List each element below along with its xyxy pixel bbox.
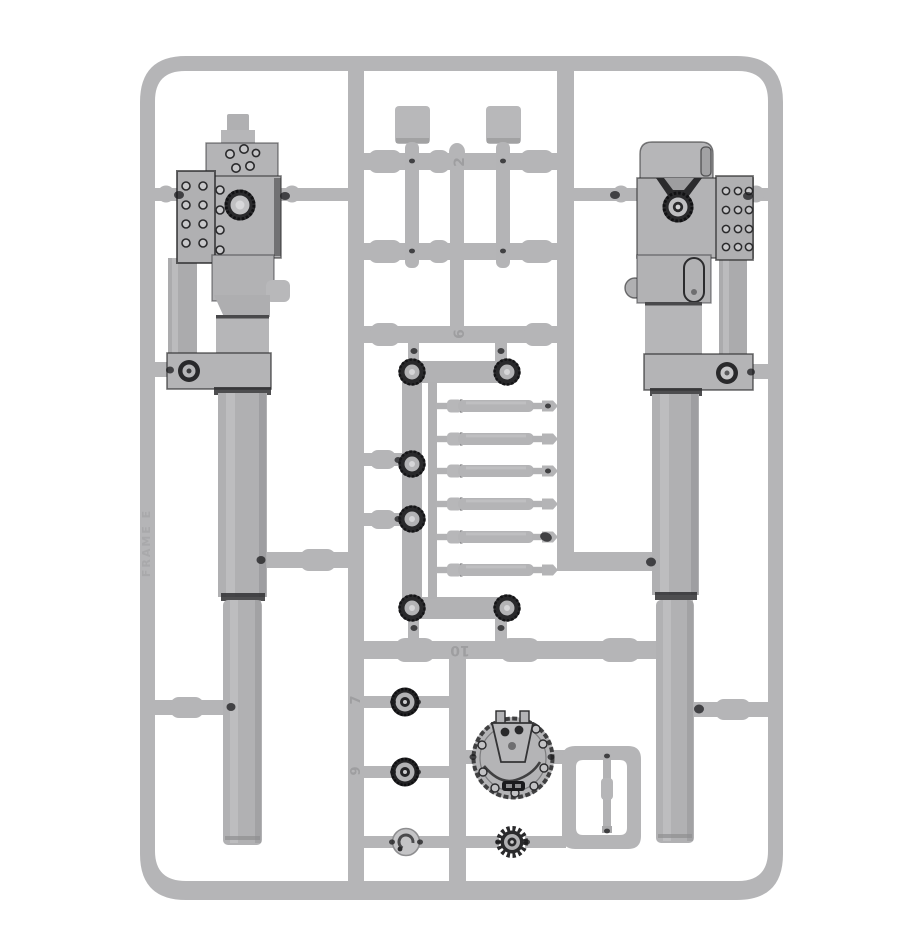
part-number-9: 9 — [349, 766, 364, 775]
eyelet-ring-mid-1 — [399, 451, 426, 478]
right-cannon — [625, 142, 753, 843]
rod-carrier-strip — [428, 382, 437, 599]
hub-cap — [393, 829, 420, 856]
sprue-photo: FRAME E 2 6 10 7 9 — [0, 0, 920, 950]
trail-bracket-upper — [399, 359, 521, 619]
recoil-piston-rods — [436, 399, 558, 577]
left-cannon — [167, 114, 290, 845]
frame-label: FRAME E — [140, 509, 153, 577]
part-number-6: 6 — [452, 329, 468, 339]
mount-plate — [472, 711, 554, 799]
center-stub-runner — [449, 143, 465, 343]
eyelet-ring-mid-2 — [399, 506, 426, 533]
pin-part — [601, 754, 613, 833]
part-number-2: 2 — [452, 157, 468, 167]
trail-bracket-lower — [399, 595, 521, 622]
toothed-gear — [499, 829, 526, 856]
part-number-10: 10 — [450, 642, 470, 658]
part-number-7: 7 — [349, 695, 364, 704]
